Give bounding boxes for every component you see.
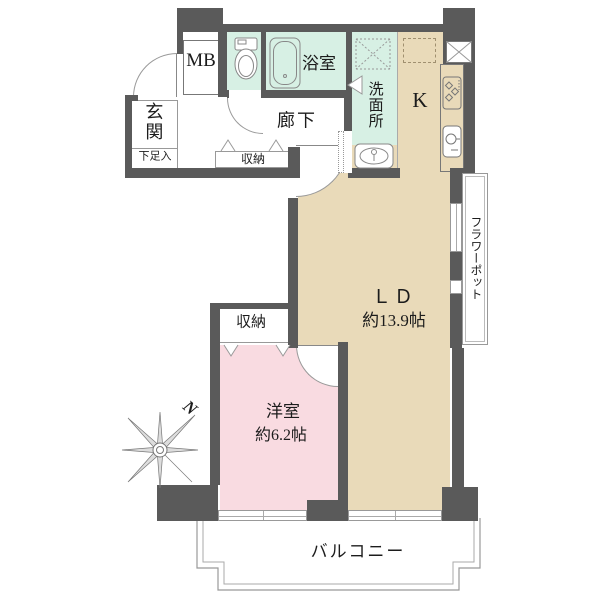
toilet-door-gap [229, 90, 261, 98]
wall-bottom-right-pillar [442, 487, 478, 521]
washroom-label: 洗面所 [365, 81, 382, 129]
wall-right-lower [452, 348, 464, 488]
meter-box-label: MB [186, 50, 216, 72]
wall-entrance-left [125, 95, 132, 178]
entrance-label: 玄関 [143, 102, 164, 142]
flower-pot-label: フラワーポット [468, 216, 482, 300]
duct-icon [446, 41, 472, 63]
wall-bedroom-right [338, 342, 348, 511]
kitchen-sink-icon [442, 124, 464, 160]
wall-hall-bottom [125, 168, 300, 178]
wall-right-kitchen [464, 56, 475, 178]
wall-top-left-pillar [177, 8, 223, 32]
washer-pan-icon [355, 38, 391, 70]
window-bedroom [218, 510, 307, 521]
wall-closet-top [210, 303, 293, 309]
shoe-box-label: 下足入 [139, 151, 172, 164]
entrance-door [133, 53, 177, 97]
hall-closet-label: 収納 [241, 153, 265, 167]
bedroom-size: 約6.2帖 [255, 427, 307, 445]
wall-bedroom-left [210, 303, 220, 485]
window-living [348, 510, 442, 521]
washbasin-icon [354, 143, 394, 169]
window-right-small [450, 280, 462, 294]
bedroom-closet-door-icon [216, 344, 293, 357]
window-right-large [450, 203, 462, 252]
balcony-label: バルコニー [311, 542, 406, 562]
washroom-sliding-door [338, 131, 344, 173]
stove-icon [442, 75, 464, 111]
entrance-step-line [132, 148, 177, 149]
bedroom-label: 洋室 [266, 402, 300, 422]
living-dining-size: 約13.9帖 [362, 311, 426, 331]
living-dining-label: ＬＤ [372, 287, 416, 309]
wall-mb-left [177, 30, 183, 54]
wall-ld-left [288, 198, 298, 348]
hall-closet-door-icon [215, 139, 295, 152]
refrigerator-space-icon [403, 38, 436, 63]
kitchen-label: K [412, 88, 427, 112]
washroom-door-gap [344, 131, 352, 173]
compass-icon [115, 398, 210, 493]
wall-mb-right [218, 30, 227, 97]
bath-door-icon [347, 75, 363, 95]
bedroom-closet-label: 収納 [236, 314, 266, 331]
wall-washroom-bottom [348, 168, 400, 178]
wall-bottom-stub [307, 500, 348, 521]
toilet-icon [233, 37, 259, 81]
toilet-door [227, 98, 263, 134]
washroom-kitchen-border [397, 32, 398, 168]
hallway-label: 廊下 [277, 111, 317, 132]
floor-plan: N 玄関 下足入 MB 浴室 洗面所 K 廊下 収納 収納 ＬＤ 約13.9帖 … [0, 0, 600, 600]
wall-toilet-bath-divider [261, 32, 266, 95]
wall-top [219, 24, 445, 32]
bathroom-label: 浴室 [302, 54, 336, 74]
bathtub-icon [269, 37, 301, 89]
wall-entrance-top-stub [125, 95, 138, 101]
